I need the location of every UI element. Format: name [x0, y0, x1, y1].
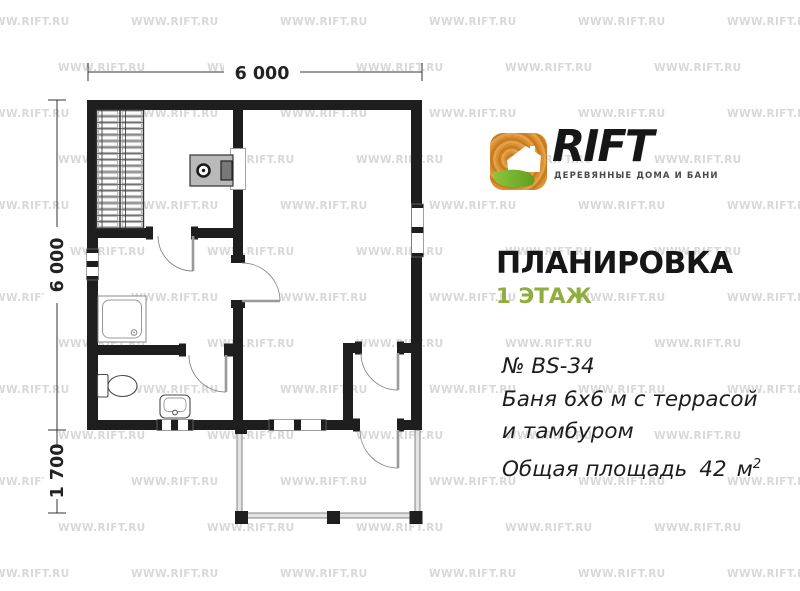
dim-top-label: 6 000 — [235, 64, 290, 84]
door-steam — [158, 236, 193, 271]
toilet — [98, 375, 138, 398]
total-area-line: Общая площадь42м2 — [502, 449, 761, 487]
area-label: Общая площадь — [502, 457, 687, 482]
area-sup: 2 — [753, 457, 761, 472]
door-terrace — [360, 430, 398, 468]
dim-top: 6 000 — [88, 57, 422, 84]
dim-left-bottom: 1 700 — [44, 430, 70, 513]
area-unit: м — [737, 457, 753, 482]
dim-left: 6 000 — [44, 100, 70, 430]
floor-label: 1 ЭТАЖ — [496, 284, 733, 310]
house-icon — [507, 146, 541, 172]
brand-tagline: ДЕРЕВЯННЫЕ ДОМА И БАНИ — [554, 171, 719, 181]
dim-left-label: 6 000 — [48, 238, 68, 293]
sauna-benches — [97, 110, 144, 229]
shower-tray — [98, 296, 146, 342]
brand-name: RIFT — [552, 125, 652, 169]
sink — [160, 395, 190, 418]
rift-logo-icon — [490, 133, 547, 190]
area-value: 42 — [699, 457, 726, 482]
project-number: № BS-34 — [502, 351, 761, 384]
description-line2: и тамбуром — [502, 416, 761, 449]
page-title: ПЛАНИРОВКА — [496, 247, 733, 281]
description-line1: Баня 6х6 м с террасой — [502, 384, 761, 417]
door-wc — [189, 355, 226, 392]
dim-left-bottom-label: 1 700 — [48, 444, 68, 499]
terrace-posts — [235, 422, 423, 524]
door-tambour — [361, 353, 398, 390]
terrace — [235, 422, 423, 524]
description-block: № BS-34 Баня 6х6 м с террасой и тамбуром… — [502, 351, 761, 486]
door-shower — [242, 263, 280, 301]
stove — [190, 155, 233, 186]
page: { "watermark": { "text": "WWW.RIFT.RU", … — [0, 0, 800, 591]
heading-block: ПЛАНИРОВКА 1 ЭТАЖ — [496, 247, 733, 310]
